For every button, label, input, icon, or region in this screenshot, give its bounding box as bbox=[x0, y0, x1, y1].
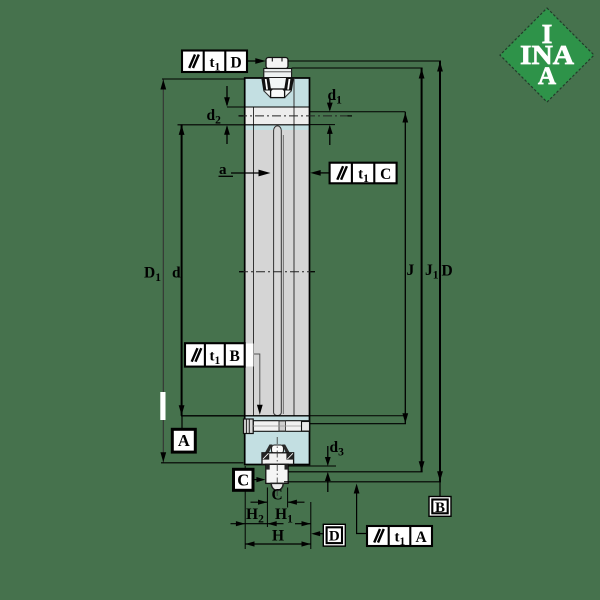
svg-text:C: C bbox=[272, 487, 283, 504]
svg-text:d1: d1 bbox=[328, 87, 343, 107]
svg-text:B: B bbox=[435, 500, 445, 516]
svg-text:J: J bbox=[407, 262, 415, 279]
svg-text:A: A bbox=[416, 529, 428, 546]
svg-text:H2: H2 bbox=[246, 506, 264, 526]
svg-text:d: d bbox=[172, 265, 181, 282]
svg-text:H1: H1 bbox=[275, 506, 293, 526]
svg-text:d2: d2 bbox=[207, 107, 222, 127]
svg-text:J1: J1 bbox=[425, 262, 439, 282]
svg-text:C: C bbox=[380, 166, 391, 183]
svg-text:D: D bbox=[329, 529, 340, 545]
svg-text:H: H bbox=[272, 528, 284, 545]
svg-text:D: D bbox=[442, 263, 453, 280]
svg-text:a: a bbox=[219, 162, 227, 178]
svg-text:d3: d3 bbox=[330, 439, 345, 459]
svg-text:D1: D1 bbox=[144, 265, 161, 285]
svg-text:C: C bbox=[237, 470, 249, 489]
svg-text:A: A bbox=[538, 63, 556, 90]
svg-text:A: A bbox=[178, 431, 190, 450]
svg-text:D: D bbox=[231, 55, 242, 72]
svg-text:B: B bbox=[230, 348, 240, 365]
